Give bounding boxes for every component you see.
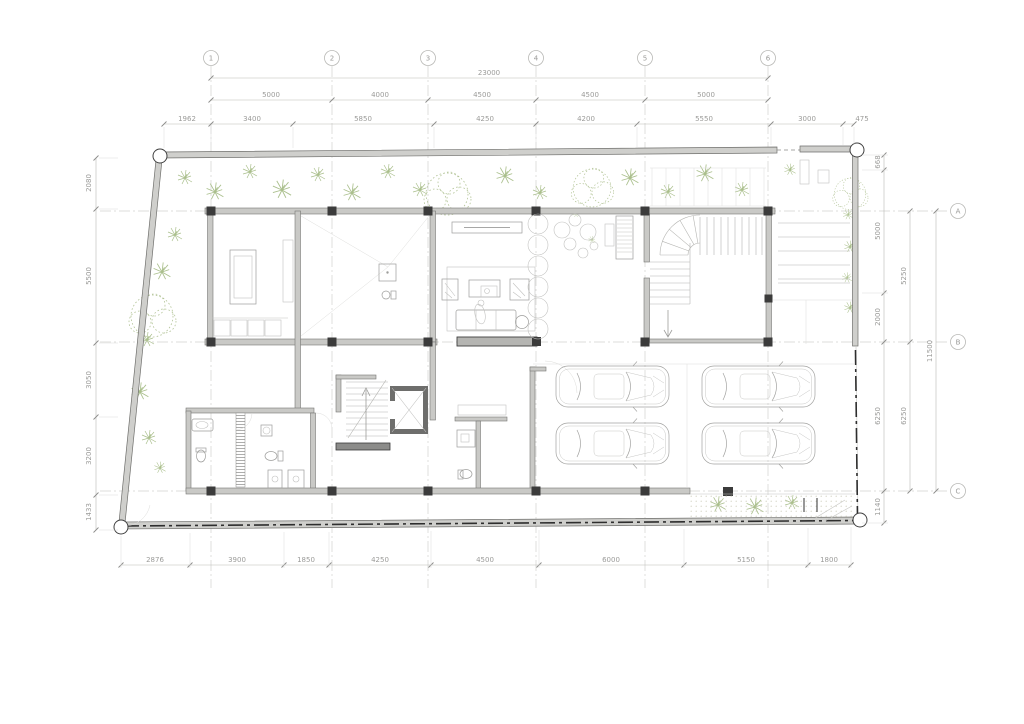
kitchen xyxy=(212,240,293,336)
service-staircase xyxy=(346,380,388,440)
svg-text:5: 5 xyxy=(643,55,647,63)
dim-top: 23000 5000 4000 4500 4500 5000 1962 3400… xyxy=(162,69,869,148)
dim-label: 4200 xyxy=(577,115,595,123)
garage xyxy=(533,361,855,487)
dim-label: 6250 xyxy=(874,407,882,425)
floor-plan-page: 23000 5000 4000 4500 4500 5000 1962 3400… xyxy=(0,0,1024,724)
living-room xyxy=(442,222,535,331)
car-1 xyxy=(556,362,669,412)
dim-label: 5000 xyxy=(697,91,715,99)
dim-bottom: 2876 3900 1850 4250 4500 6000 5150 1800 xyxy=(119,527,854,568)
dim-label: 5150 xyxy=(737,556,755,564)
floor-plan-canvas: 23000 5000 4000 4500 4500 5000 1962 3400… xyxy=(0,0,1024,724)
svg-text:4: 4 xyxy=(534,55,539,63)
stepping-planters xyxy=(528,214,548,339)
dim-left: 2080 5500 3050 3200 1433 xyxy=(85,156,118,533)
car-4 xyxy=(702,419,815,469)
plant-pots xyxy=(554,214,598,258)
dim-label: 4500 xyxy=(476,556,494,564)
stair-landing-wall xyxy=(336,443,390,450)
dim-right: 668 5000 2000 6250 1140 5250 6250 11500 xyxy=(862,153,939,526)
dim-label: 668 xyxy=(874,155,882,168)
grid-bubble-col-1: 1 xyxy=(204,51,219,66)
elevator xyxy=(390,386,428,434)
dim-label: 2080 xyxy=(85,174,93,192)
dim-label: 1433 xyxy=(85,503,93,521)
grid-bubble-row-c: C xyxy=(951,484,966,499)
grid-bubble-row-b: B xyxy=(951,335,966,350)
dim-label: 5250 xyxy=(900,267,908,285)
dim-label: 3200 xyxy=(85,447,93,465)
dim-label: 1962 xyxy=(178,115,196,123)
dim-label: 3400 xyxy=(243,115,261,123)
dim-label: 1140 xyxy=(874,498,882,516)
dim-label: 4250 xyxy=(476,115,494,123)
dim-label: 2876 xyxy=(146,556,164,564)
family-room xyxy=(301,216,429,336)
grid-bubble-col-4: 4 xyxy=(529,51,544,66)
dim-label: 2000 xyxy=(874,308,882,326)
dim-label: 5000 xyxy=(262,91,280,99)
car-2 xyxy=(556,419,669,469)
dim-label: 3900 xyxy=(228,556,246,564)
svg-text:B: B xyxy=(956,339,961,347)
powder-room xyxy=(457,405,506,479)
columns xyxy=(207,207,773,497)
dim-label: 4250 xyxy=(371,556,389,564)
dim-label: 5850 xyxy=(354,115,372,123)
driveway-planter xyxy=(690,494,855,521)
main-staircase xyxy=(650,215,762,337)
dim-label: 23000 xyxy=(478,69,500,77)
piano xyxy=(605,216,633,259)
dim-label: 1850 xyxy=(297,556,315,564)
svg-text:C: C xyxy=(956,488,961,496)
grid-bubble-row-a: A xyxy=(951,204,966,219)
svg-text:3: 3 xyxy=(426,55,430,63)
dim-label: 5000 xyxy=(874,222,882,240)
entry-paving xyxy=(650,160,852,344)
dim-label: 11500 xyxy=(926,340,934,362)
car-3 xyxy=(702,362,815,412)
svg-text:1: 1 xyxy=(209,55,213,63)
stair-direction-arrow xyxy=(664,310,672,337)
dim-label: 4500 xyxy=(581,91,599,99)
svg-text:A: A xyxy=(956,208,961,216)
grid-bubble-col-3: 3 xyxy=(421,51,436,66)
dim-label: 3000 xyxy=(798,115,816,123)
dim-label: 5500 xyxy=(85,267,93,285)
grid-bubble-col-6: 6 xyxy=(761,51,776,66)
planter-wall xyxy=(457,337,537,346)
dim-label: 5550 xyxy=(695,115,713,123)
svg-text:2: 2 xyxy=(330,55,334,63)
dim-label: 3050 xyxy=(85,371,93,389)
dim-label: 475 xyxy=(855,115,868,123)
dim-label: 1800 xyxy=(820,556,838,564)
dim-label: 6250 xyxy=(900,407,908,425)
dim-label: 4000 xyxy=(371,91,389,99)
grid-bubble-col-2: 2 xyxy=(325,51,340,66)
dim-label: 6000 xyxy=(602,556,620,564)
closet-hatch xyxy=(236,413,245,487)
walls xyxy=(186,208,775,494)
svg-text:6: 6 xyxy=(766,55,771,63)
grid-bubble-col-5: 5 xyxy=(638,51,653,66)
dim-label: 4500 xyxy=(473,91,491,99)
